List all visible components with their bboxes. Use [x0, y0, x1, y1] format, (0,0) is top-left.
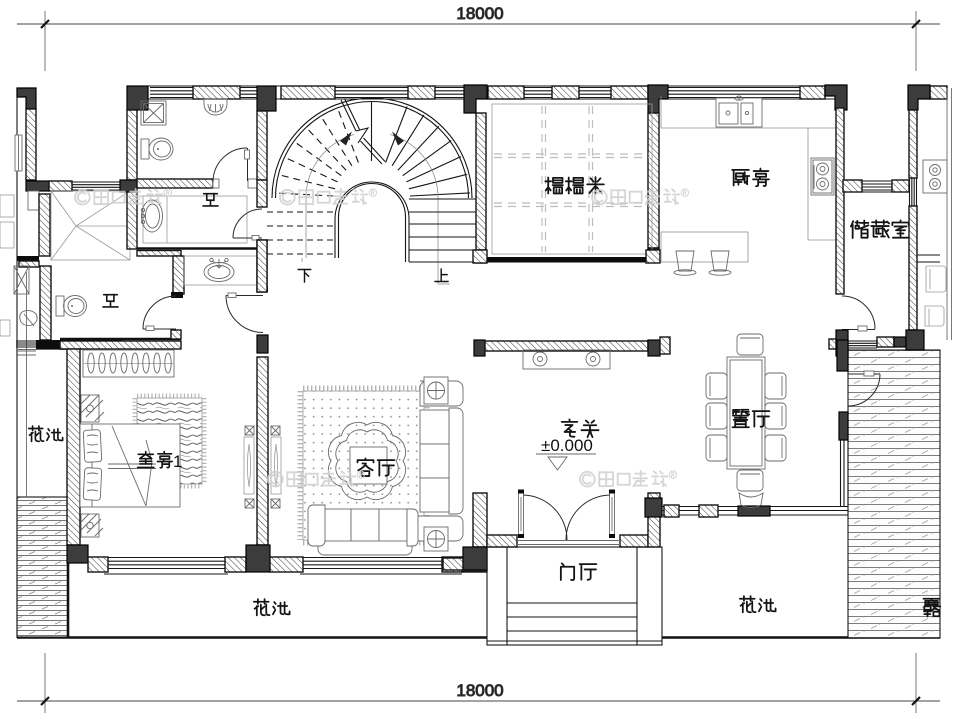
svg-text:18000: 18000 — [456, 681, 503, 700]
svg-text:±0.000: ±0.000 — [541, 436, 593, 455]
svg-text:18000: 18000 — [456, 4, 503, 23]
svg-text:1: 1 — [173, 452, 182, 471]
